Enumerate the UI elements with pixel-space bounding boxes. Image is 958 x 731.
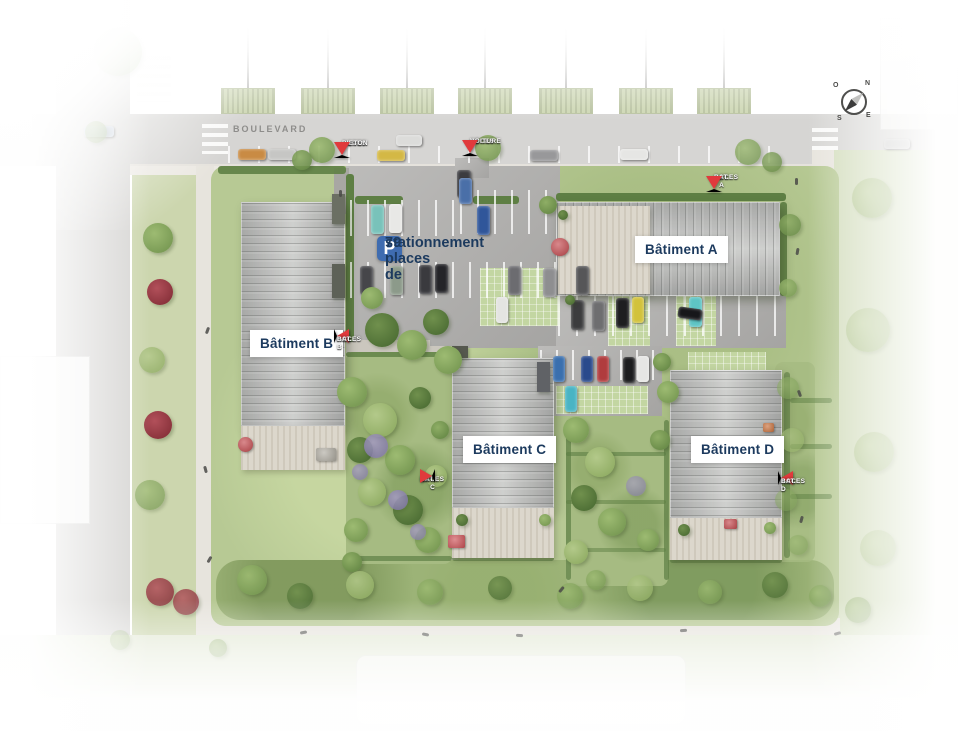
tree [456,514,468,526]
building-c-terrace [452,508,554,558]
car [592,301,605,331]
tree [434,346,462,374]
tree [860,530,896,566]
site-plan: Bâtiment A Bâtiment B Bâtiment C Bâtimen… [0,0,958,731]
access-arrow-icon [420,469,435,483]
tree [657,381,679,403]
car [581,356,593,382]
compass-rose: O N S E [831,78,877,126]
car [565,386,577,412]
tree [144,411,172,439]
tree [854,432,894,472]
car [377,150,405,161]
access-arrow-icon [334,142,350,158]
tree [565,295,575,305]
neighbor-building-south [356,655,686,725]
tree [365,313,399,347]
tree [431,421,449,439]
planter [697,88,751,114]
street-name: BOULEVARD [233,124,307,134]
planter [380,88,434,114]
compass-south: S [837,115,842,122]
neighbor-building-west [0,356,90,524]
umbrella [316,448,336,461]
car [571,300,584,330]
tree [845,597,871,623]
tree [409,387,431,409]
tree [598,508,626,536]
tree [558,210,568,220]
pedestrian [339,190,342,197]
shed [537,362,550,392]
car [435,264,448,293]
planter [221,88,275,114]
compass-west: O [833,82,838,89]
fence-post [406,26,408,88]
tree [762,572,788,598]
tree [385,445,415,475]
right-verge [834,150,958,650]
tree [764,522,776,534]
car [553,356,565,382]
tree [364,434,388,458]
car [620,149,648,160]
fence-post [247,26,249,88]
car [496,297,508,323]
tree [586,570,606,590]
tree [539,196,557,214]
tree [352,464,368,480]
tree [846,308,890,352]
hedge [218,166,346,174]
car [597,356,609,382]
building-a-label[interactable]: Bâtiment A [635,236,728,263]
tree [539,514,551,526]
tree [358,478,386,506]
tree [342,552,362,572]
tree [139,347,165,373]
tree [627,575,653,601]
tree [346,571,374,599]
planter [458,88,512,114]
pedestrian [516,634,523,638]
tree [777,377,799,399]
car [389,204,402,233]
tree [653,353,671,371]
shed [332,194,345,224]
tree [143,223,173,253]
car [477,206,490,235]
hedge [566,452,666,456]
tree [626,476,646,496]
fence-post [723,26,725,88]
shed [332,264,345,298]
tree [388,490,408,510]
tree [337,377,367,407]
compass-north: N [865,80,870,87]
crosswalk-north [137,56,171,102]
car [508,266,521,295]
tree [417,579,443,605]
car [632,297,644,323]
building-d-label[interactable]: Bâtiment D [691,436,784,463]
tree [698,580,722,604]
car [884,139,910,149]
tree [564,540,588,564]
planter [301,88,355,114]
tree [788,535,808,555]
crosswalk-east [812,128,838,151]
tree [852,178,892,218]
neighbor-building-northeast [880,18,958,130]
tree [85,121,107,143]
tree [135,480,165,510]
tree [146,578,174,606]
tree [735,139,761,165]
umbrella [238,437,253,452]
fence-post [484,26,486,88]
crosswalk-west [202,124,228,154]
umbrella [763,423,774,432]
car [623,357,635,383]
tree [110,630,130,650]
tree [779,214,801,236]
tree [237,565,267,595]
tree [292,150,312,170]
tree [423,309,449,335]
tree [147,279,173,305]
car [459,178,472,204]
car [616,298,629,328]
car [396,135,422,146]
tree [779,279,797,297]
tree [209,639,227,657]
tree [397,330,427,360]
tree [173,589,199,615]
umbrella [448,535,465,548]
umbrella [724,519,737,529]
tree [563,417,589,443]
hedge [556,193,786,201]
access-arrow-icon [706,176,722,192]
car [637,356,649,382]
car [530,150,558,161]
tree [637,529,659,551]
tree [571,485,597,511]
pedestrian [795,178,798,185]
tree [361,287,383,309]
tree [410,524,426,540]
fence-post [645,26,647,88]
tree [309,137,335,163]
access-arrow-icon [462,140,478,156]
pedestrian [680,629,687,633]
hedge [790,398,832,403]
umbrella [551,238,569,256]
tree [94,28,142,76]
tree [488,576,512,600]
planter [619,88,673,114]
tree [762,152,782,172]
car [576,266,589,295]
compass-east: E [866,112,871,119]
tree [809,585,831,607]
car [543,268,556,297]
building-b-label[interactable]: Bâtiment B [250,330,343,357]
tree [344,518,368,542]
car [371,205,384,234]
building-c-label[interactable]: Bâtiment C [463,436,556,463]
tree [287,583,313,609]
tree [585,447,615,477]
building-b-roof [241,202,345,426]
tree [363,403,397,437]
tree [650,430,670,450]
fence-post [565,26,567,88]
car [238,149,266,160]
parking-lines [350,200,460,236]
tree [678,524,690,536]
planter [539,88,593,114]
fence-post [327,26,329,88]
